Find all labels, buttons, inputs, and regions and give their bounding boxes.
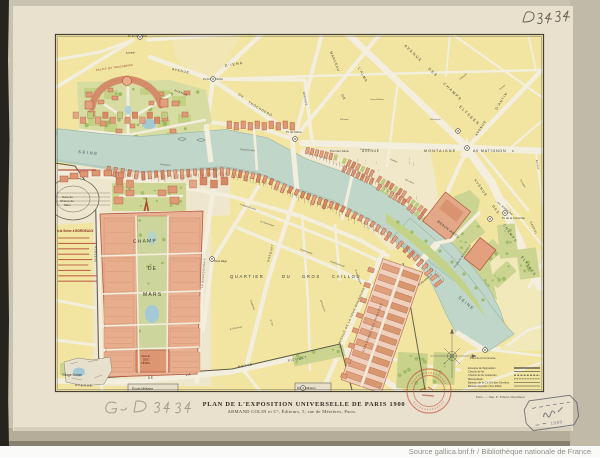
svg-text:Bateaux de la C'é G'é des Omni: Bateaux de la C'é G'é des Omnibus [468, 380, 510, 384]
svg-text:R.François: R.François [430, 118, 441, 121]
svg-text:Enceinte de l'Exposition: Enceinte de l'Exposition [468, 366, 496, 370]
svg-text:LA: LA [186, 372, 192, 377]
svg-text:Port de l'Alma: Port de l'Alma [330, 149, 349, 153]
svg-text:Métropolitain: Métropolitain [468, 377, 483, 381]
svg-text:GROS: GROS [302, 274, 321, 279]
svg-text:FÊTES: FÊTES [141, 360, 150, 365]
svg-text:R.Surcouf: R.Surcouf [360, 148, 370, 151]
svg-text:MONTAIGNE: MONTAIGNE [424, 149, 456, 153]
svg-text:Bateaux Express (Tour Eiffel): Bateaux Express (Tour Eiffel) [468, 384, 502, 388]
svg-text:SUFFREN: SUFFREN [93, 245, 98, 262]
svg-text:AV MATIGNON: AV MATIGNON [473, 149, 506, 153]
svg-text:Village Suisse: Village Suisse [62, 373, 82, 377]
svg-text:Pl. de la Concorde: Pl. de la Concorde [502, 216, 525, 220]
svg-text:AVENUE: AVENUE [75, 383, 93, 388]
svg-text:École Militaire: École Militaire [132, 386, 153, 391]
svg-text:Porte Rapp: Porte Rapp [214, 259, 228, 263]
svg-text:DE: DE [148, 376, 154, 380]
svg-text:PLAN DE L'EXPOSITION UNIVERSEL: PLAN DE L'EXPOSITION UNIVERSELLE DE PARI… [203, 401, 406, 408]
svg-text:DE: DE [148, 266, 157, 272]
svg-text:École Militaire: École Militaire [297, 385, 316, 390]
svg-text:R.Fabert: R.Fabert [340, 118, 349, 121]
svg-text:Chemin de fer: Chemin de fer [468, 370, 484, 374]
svg-text:à la Seine à BORDEAUX: à la Seine à BORDEAUX [57, 229, 94, 233]
svg-text:Mars: Mars [64, 203, 71, 207]
svg-text:MARS: MARS [143, 292, 162, 298]
svg-text:Kleber: Kleber [126, 50, 136, 55]
svg-text:R.: R. [512, 150, 515, 153]
svg-text:CoursLaReine: CoursLaReine [370, 98, 385, 101]
svg-text:Source gallica.bnf.fr / Biblio: Source gallica.bnf.fr / Bibliothèque nat… [409, 447, 591, 456]
svg-text:Chemin de fer souterrain: Chemin de fer souterrain [468, 373, 497, 377]
svg-text:Pl. de l'Alma: Pl. de l'Alma [286, 130, 302, 134]
svg-text:CHAMP: CHAMP [133, 238, 157, 245]
svg-text:DU: DU [282, 274, 291, 279]
svg-text:QUARTIER: QUARTIER [230, 274, 264, 279]
